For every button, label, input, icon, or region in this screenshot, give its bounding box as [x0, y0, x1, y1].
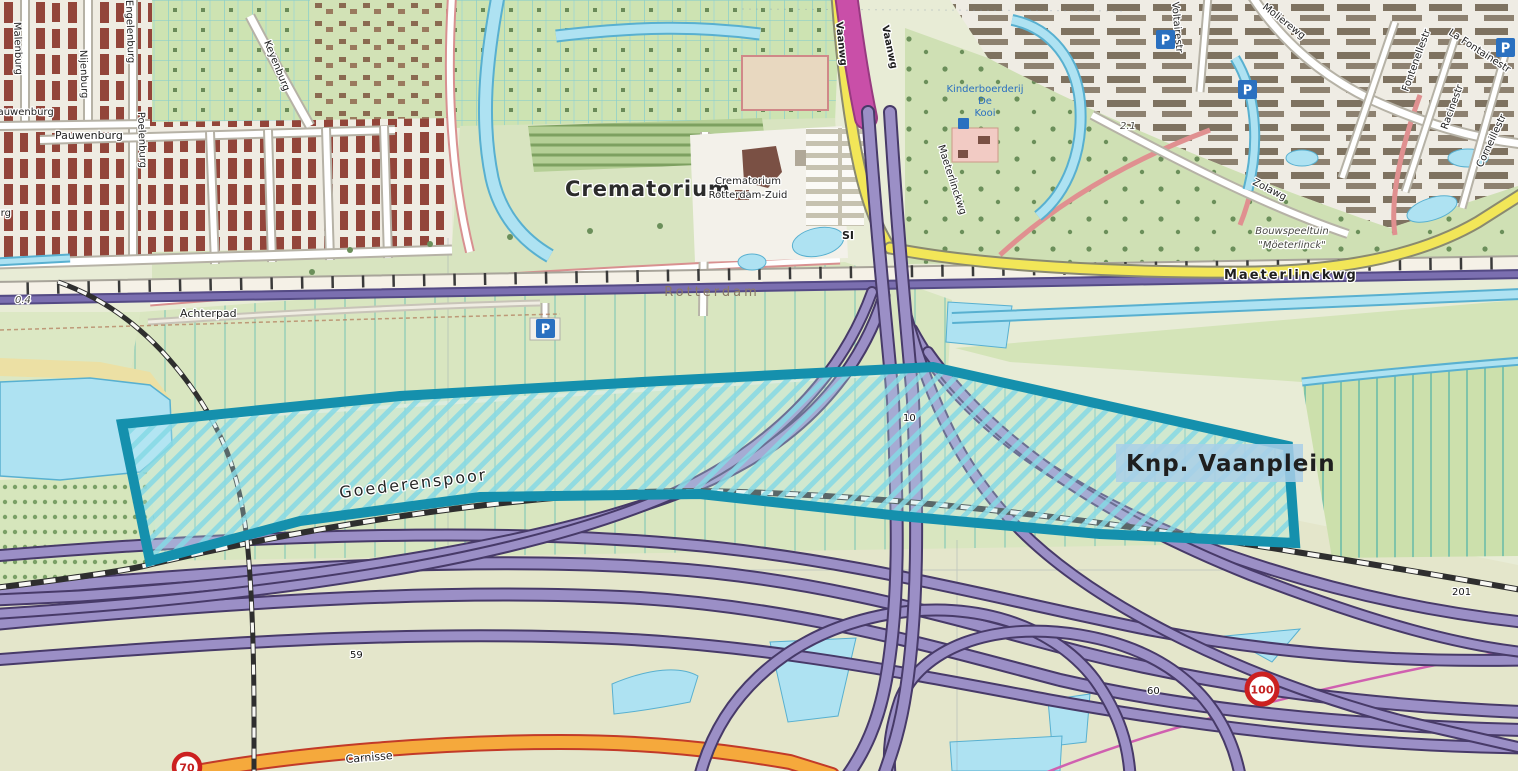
marker-10: 10	[903, 413, 916, 424]
label-bouwspeeltuin-1: Bouwspeeltuin	[1255, 226, 1329, 237]
label-poelenburg: Poelenburg	[135, 112, 148, 169]
crematorium-pond-2	[738, 254, 766, 270]
tree	[427, 241, 433, 247]
poi-icon	[958, 118, 969, 129]
marker-60: 60	[1147, 686, 1160, 697]
marker-59: 59	[350, 650, 363, 661]
interchange-water-5	[950, 736, 1062, 771]
parking-icon-letter: P	[1501, 42, 1511, 57]
label-achterpad: Achterpad	[180, 307, 237, 320]
parking-icon-letter: P	[1161, 34, 1171, 49]
marker-2-1: 2.1	[1120, 121, 1136, 132]
label-kinderboerderij-3: Kooi	[974, 108, 995, 119]
pond-right-2	[1286, 150, 1318, 166]
label-engelenburg: Engelenburg	[123, 0, 136, 63]
tree	[657, 223, 663, 229]
speed-sign-100-value: 100	[1251, 684, 1274, 697]
label-bouwspeeltuin-2: "Möeterlinck"	[1258, 240, 1325, 251]
label-crematorium-area: Crematorium	[565, 177, 731, 201]
topo-map: Knp. Vaanplein Malenburg Nijenburg Engel…	[0, 0, 1518, 771]
label-kinderboerderij-2: De	[978, 96, 992, 107]
speed-sign-70: 70	[174, 754, 200, 771]
garden-block	[742, 56, 828, 110]
label-si: SI	[842, 229, 854, 242]
tree	[309, 269, 315, 275]
kinderboerderij-shed-2	[978, 136, 990, 144]
label-crematorium-name-1: Crematorium	[715, 176, 781, 187]
marker-0-4: 0.4	[15, 295, 31, 306]
street-pauwenburg-1	[0, 124, 150, 126]
parking-icon-3: P	[1238, 80, 1257, 99]
region-label: Knp. Vaanplein	[1126, 451, 1336, 477]
pond-by-motorway	[946, 302, 1012, 348]
speed-sign-100: 100	[1247, 674, 1277, 704]
label-pauwenburg-2: Pauwenburg	[55, 129, 123, 142]
parking-icon-letter: P	[1243, 84, 1253, 99]
label-malenburg: Malenburg	[11, 22, 24, 75]
parking-icon-2: P	[1156, 30, 1175, 49]
tree	[507, 234, 513, 240]
label-maeterlinckwg-main: Maeterlinckwg	[1224, 268, 1358, 283]
parking-icon-letter: P	[541, 323, 551, 338]
label-nijenburg: Nijenburg	[77, 50, 90, 99]
street-left-3	[326, 128, 330, 260]
street-left-4	[384, 126, 388, 258]
garden-plots-left	[152, 0, 310, 122]
label-crematorium-name-2: Rotterdam-Zuid	[709, 190, 788, 201]
speed-sign-70-value: 70	[179, 762, 195, 771]
map-canvas[interactable]: Knp. Vaanplein Malenburg Nijenburg Engel…	[0, 0, 1518, 771]
tree	[587, 228, 593, 234]
parking-icon-1: P	[536, 319, 555, 338]
label-rotterdam: Rotterdam	[664, 285, 760, 300]
parking-icon-4: P	[1496, 38, 1515, 57]
kinderboerderij-shed-1	[958, 150, 968, 158]
tree	[347, 247, 353, 253]
label-kinderboerderij-1: Kinderboerderij	[946, 84, 1023, 95]
label-pauwenburg-1: Pauwenburg	[0, 107, 54, 118]
street-left-2	[268, 130, 272, 262]
marker-201: 201	[1452, 587, 1471, 598]
garden-sheds	[310, 0, 452, 120]
label-burg-fragment: burg	[0, 208, 11, 219]
